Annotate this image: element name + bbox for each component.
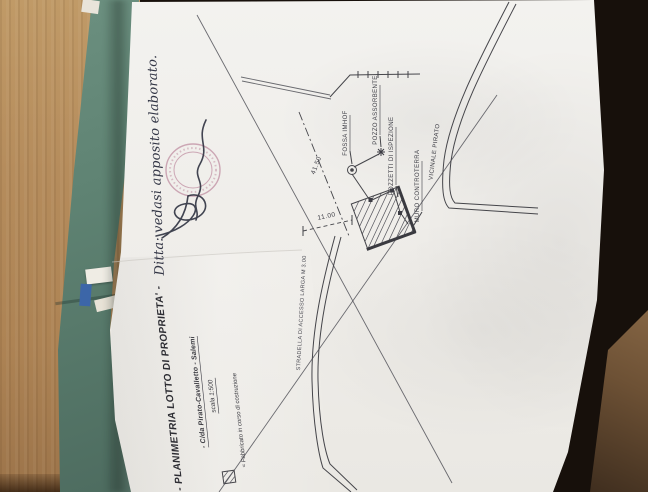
road-name-label: VICINALE PIRATO xyxy=(429,123,442,180)
fossa-imhoff-label: FOSSA IMHOF xyxy=(343,110,350,155)
imhoff-tank-center xyxy=(350,168,354,172)
page-curl-edge xyxy=(112,250,302,262)
access-lane xyxy=(312,236,357,492)
boundary-line xyxy=(219,95,497,492)
title-block-scale: scala 1:500 xyxy=(207,378,219,415)
title-block-title: - PLANIMETRIA LOTTO DI PROPRIETA' - xyxy=(153,285,186,491)
inspection-pits-label: POZZETTI DI ISPEZIONE xyxy=(389,117,396,196)
round-ink-stamp xyxy=(166,144,220,196)
fossa-imhoff-text: FOSSA IMHOF xyxy=(343,110,349,155)
soak-pit-text: POZZO ASSORBENTE xyxy=(373,75,379,144)
access-lane-text: STRADELLA DI ACCESSO LARGA M 3.00 xyxy=(296,255,308,370)
road-name-text: VICINALE PIRATO xyxy=(429,123,442,180)
soak-pit-label: POZZO ASSORBENTE xyxy=(373,75,380,144)
leader-line xyxy=(350,151,352,164)
legend-hatch-swatch xyxy=(222,470,236,484)
plan-title-text: - PLANIMETRIA LOTTO DI PROPRIETA' - xyxy=(153,285,186,491)
retaining-wall-label: MURO CONTROTERRA xyxy=(415,150,422,223)
site-plan-drawing: VICINALE PIRATO STRADELLA DI ACCESSO LAR… xyxy=(0,0,648,492)
inspection-pits-text: POZZETTI DI ISPEZIONE xyxy=(389,117,395,196)
lot-fence-line xyxy=(241,71,420,99)
plan-location-text: - C/da Pirato-Cavalletto - Salemi xyxy=(189,335,208,448)
building-dimension-label: 11.00 xyxy=(317,211,336,222)
lot-dimension-label: 41.50 xyxy=(310,155,323,175)
handwritten-note: Ditta: vedasi apposito elaborato. xyxy=(145,54,168,276)
leader-line xyxy=(380,136,381,147)
retaining-wall xyxy=(398,186,415,233)
retaining-wall-text: MURO CONTROTERRA xyxy=(415,150,421,223)
access-lane-label: STRADELLA DI ACCESSO LARGA M 3.00 xyxy=(296,255,308,370)
building-dimension-text: 11.00 xyxy=(317,211,336,222)
handwritten-note-text: Ditta: vedasi apposito elaborato. xyxy=(145,54,168,276)
lot-dimension-text: 41.50 xyxy=(310,155,323,175)
road-vicinale-pirato xyxy=(443,2,538,214)
photo-of-site-plan: VICINALE PIRATO STRADELLA DI ACCESSO LAR… xyxy=(0,0,648,492)
legend-label: = Fabbricato in corso di costruzione xyxy=(232,372,248,468)
plan-scale-text: scala 1:500 xyxy=(207,379,217,413)
title-block-location: - C/da Pirato-Cavalletto - Salemi xyxy=(189,335,209,448)
legend-text: = Fabbricato in corso di costruzione xyxy=(232,372,248,468)
